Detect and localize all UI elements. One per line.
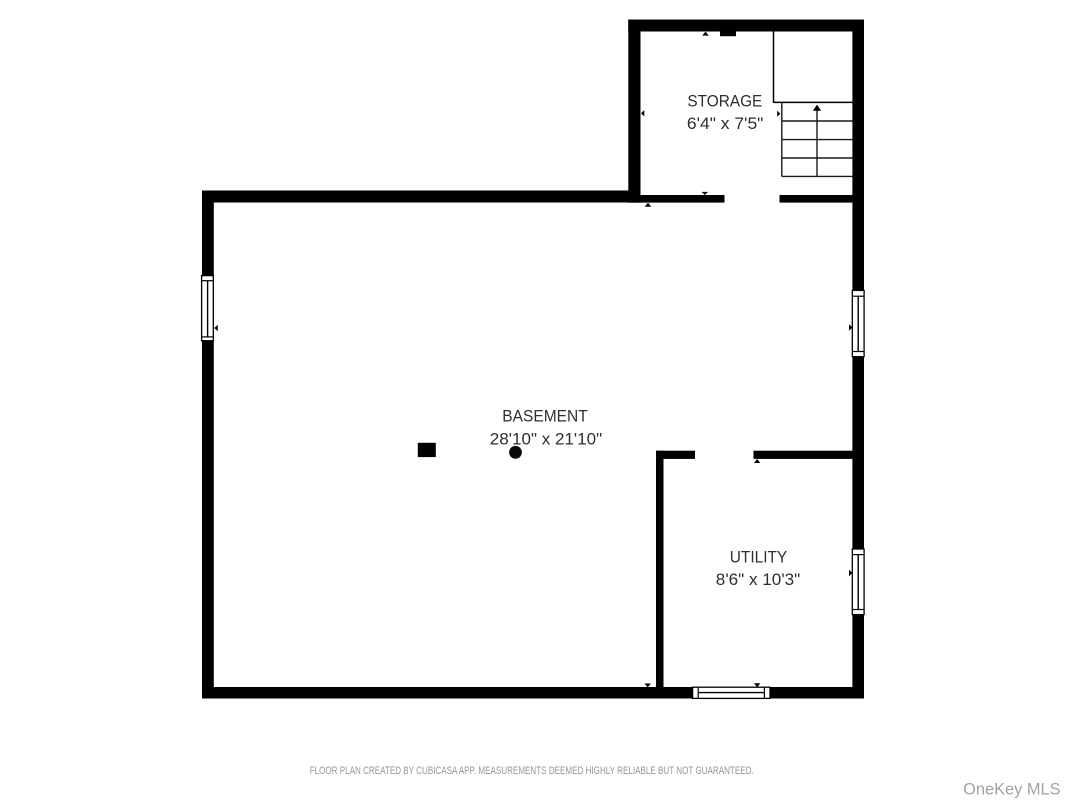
svg-text:STORAGE: STORAGE: [687, 91, 762, 110]
svg-text:UTILITY: UTILITY: [730, 548, 787, 567]
svg-text:OneKey MLS: OneKey MLS: [963, 779, 1061, 798]
svg-text:8'6" x 10'3": 8'6" x 10'3": [716, 570, 800, 589]
svg-text:28'10" x 21'10": 28'10" x 21'10": [490, 430, 602, 449]
svg-text:BASEMENT: BASEMENT: [502, 407, 587, 426]
svg-text:6'4" x 7'5": 6'4" x 7'5": [687, 114, 764, 133]
svg-text:FLOOR PLAN CREATED BY CUBICASA: FLOOR PLAN CREATED BY CUBICASA APP. MEAS…: [310, 765, 754, 777]
